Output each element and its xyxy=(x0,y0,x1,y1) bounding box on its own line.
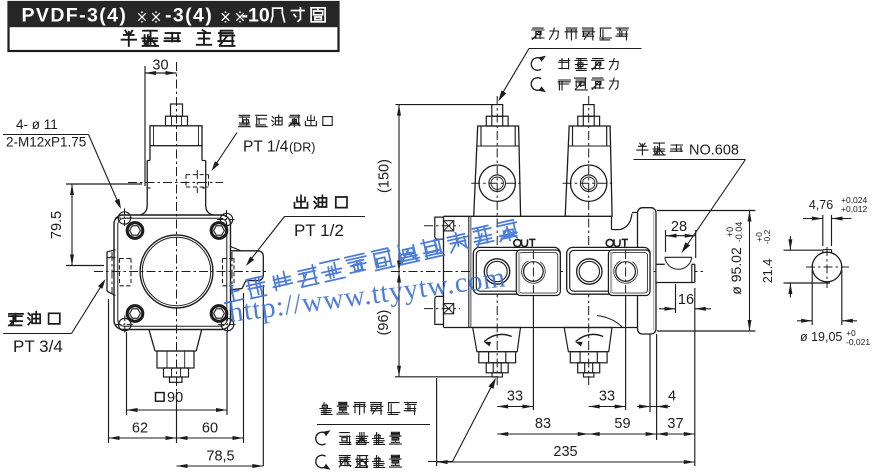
svg-text:79.5: 79.5 xyxy=(49,211,65,239)
svg-text:-0.2: -0.2 xyxy=(762,229,772,244)
svg-text:235: 235 xyxy=(553,444,577,460)
svg-text:60: 60 xyxy=(202,421,218,437)
svg-text:33: 33 xyxy=(599,389,615,405)
svg-text:78,5: 78,5 xyxy=(206,449,234,465)
svg-text:83: 83 xyxy=(535,416,551,432)
svg-text:16: 16 xyxy=(678,292,694,308)
svg-text:59: 59 xyxy=(614,416,630,432)
svg-text:+0,012: +0,012 xyxy=(841,204,868,214)
svg-text:37: 37 xyxy=(667,416,683,432)
svg-text:21.4: 21.4 xyxy=(761,259,775,283)
svg-text:2-M12xP1.75: 2-M12xP1.75 xyxy=(6,135,86,150)
svg-text:ø 95.02: ø 95.02 xyxy=(728,247,744,295)
svg-text:(96): (96) xyxy=(376,310,392,336)
svg-text:62: 62 xyxy=(132,421,148,437)
svg-text:PVDF-3(4): PVDF-3(4) xyxy=(22,4,128,26)
svg-text:PT 3/4: PT 3/4 xyxy=(13,337,63,356)
svg-text:-10: -10 xyxy=(242,4,270,26)
svg-text:(DR): (DR) xyxy=(289,141,315,155)
svg-text:4: 4 xyxy=(668,389,676,405)
svg-text:PT 1/4: PT 1/4 xyxy=(243,139,289,156)
svg-text:(150): (150) xyxy=(377,159,393,193)
svg-text:28: 28 xyxy=(671,219,687,235)
svg-text:ø 19,05: ø 19,05 xyxy=(800,330,842,344)
svg-text:90: 90 xyxy=(167,390,183,406)
svg-text:PT 1/2: PT 1/2 xyxy=(294,221,344,240)
svg-text:-0,021: -0,021 xyxy=(846,337,870,347)
svg-text:4,76: 4,76 xyxy=(809,198,833,212)
svg-text:NO.608: NO.608 xyxy=(689,143,739,159)
svg-text:-0.04: -0.04 xyxy=(734,222,744,243)
svg-text:4- ø 11: 4- ø 11 xyxy=(16,117,58,132)
svg-text:30: 30 xyxy=(152,58,168,74)
svg-text:-3(4): -3(4) xyxy=(165,4,213,26)
svg-text:33: 33 xyxy=(507,389,523,405)
